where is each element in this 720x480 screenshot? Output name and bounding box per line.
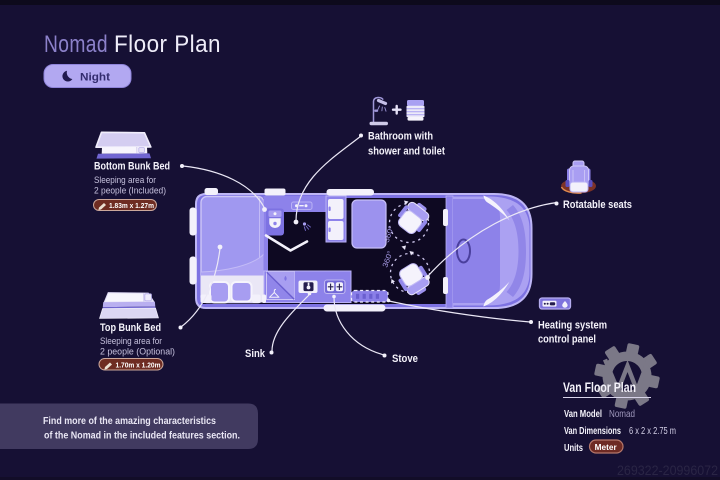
svg-text:Top Bunk Bed: Top Bunk Bed	[100, 322, 161, 334]
svg-text:1.83m x 1.27m: 1.83m x 1.27m	[109, 201, 154, 210]
svg-text:Stove: Stove	[392, 353, 418, 365]
svg-text:1.70m x 1.20m: 1.70m x 1.20m	[116, 361, 161, 370]
svg-text:Bathroom with: Bathroom with	[368, 131, 433, 143]
svg-text:Van Floor Plan: Van Floor Plan	[563, 380, 636, 395]
svg-text:Units: Units	[564, 442, 583, 454]
svg-text:Find more of the amazing chara: Find more of the amazing characteristics	[43, 416, 216, 427]
svg-text:Meter: Meter	[595, 443, 617, 452]
svg-text:Bottom Bunk Bed: Bottom Bunk Bed	[94, 161, 170, 173]
svg-text:Sleeping area for: Sleeping area for	[94, 175, 156, 186]
svg-text:Heating system: Heating system	[538, 320, 607, 332]
svg-text:Rotatable seats: Rotatable seats	[563, 199, 632, 211]
svg-text:Sink: Sink	[245, 348, 266, 360]
svg-text:Van Dimensions: Van Dimensions	[564, 425, 621, 437]
svg-text:shower and toilet: shower and toilet	[368, 146, 445, 158]
svg-text:NomadFloor Plan: NomadFloor Plan	[44, 31, 221, 58]
svg-text:2 people (Optional): 2 people (Optional)	[100, 347, 175, 358]
svg-text:Van Model: Van Model	[564, 408, 602, 420]
svg-text:Sleeping area for: Sleeping area for	[100, 336, 162, 347]
svg-text:2 people (Included): 2 people (Included)	[94, 186, 166, 197]
svg-text:control panel: control panel	[538, 334, 596, 346]
svg-text:Night: Night	[80, 72, 110, 84]
svg-text:269322-20996072: 269322-20996072	[617, 463, 718, 478]
svg-text:6 x 2 x 2.75 m: 6 x 2 x 2.75 m	[629, 425, 676, 437]
svg-text:of the Nomad in the included f: of the Nomad in the included features se…	[44, 431, 240, 442]
svg-text:Nomad: Nomad	[609, 408, 635, 420]
